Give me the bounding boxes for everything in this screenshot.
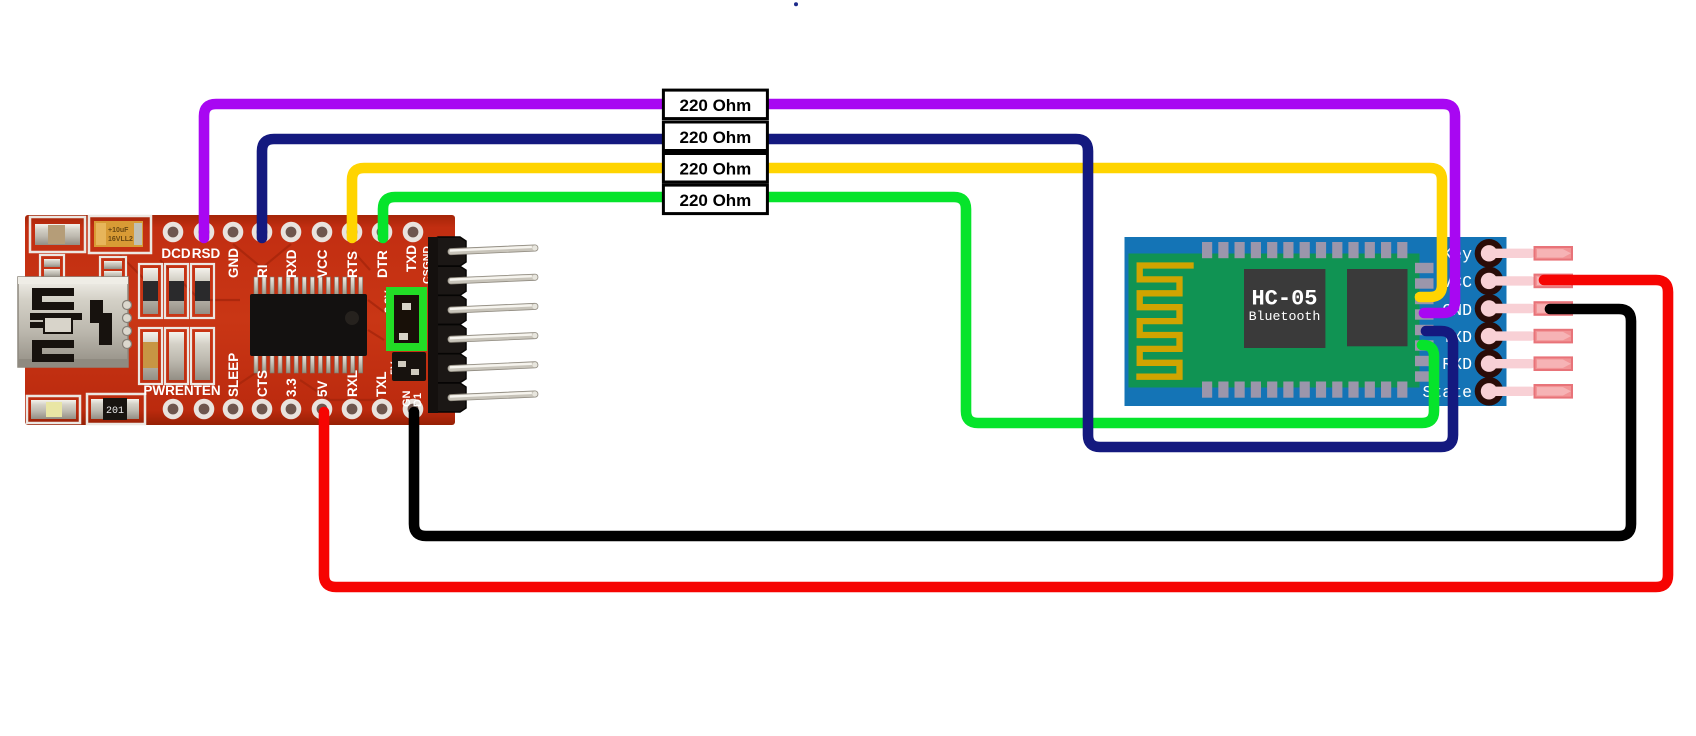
svg-text:RXL: RXL	[345, 370, 360, 397]
svg-text:D1: D1	[412, 393, 424, 407]
svg-text:SLEEP: SLEEP	[226, 353, 241, 397]
svg-text:TXD: TXD	[404, 245, 419, 272]
svg-text:VCC: VCC	[315, 249, 330, 278]
svg-text:5V: 5V	[315, 380, 330, 397]
svg-text:GND: GND	[226, 248, 241, 278]
svg-text:RXD: RXD	[284, 249, 299, 278]
svg-text:HC-05: HC-05	[1251, 286, 1317, 311]
svg-text:DTR: DTR	[375, 250, 390, 278]
svg-text:3.3: 3.3	[284, 378, 299, 397]
svg-text:+10uF: +10uF	[108, 227, 129, 234]
svg-text:TXL: TXL	[374, 372, 389, 398]
svg-text:RSD: RSD	[192, 246, 221, 261]
svg-text:RTS: RTS	[345, 251, 360, 278]
svg-text:DCD: DCD	[161, 246, 190, 261]
svg-text:CTS: CTS	[255, 370, 270, 397]
svg-text:Bluetooth: Bluetooth	[1249, 309, 1321, 324]
svg-text:220 Ohm: 220 Ohm	[679, 128, 751, 147]
svg-text:RI: RI	[255, 265, 270, 279]
svg-text:220 Ohm: 220 Ohm	[679, 159, 751, 178]
svg-text:220 Ohm: 220 Ohm	[679, 191, 751, 210]
svg-text:PWRENTEN: PWRENTEN	[143, 383, 220, 398]
svg-text:16VLL2: 16VLL2	[108, 236, 133, 243]
svg-text:201: 201	[106, 406, 124, 417]
svg-text:220 Ohm: 220 Ohm	[679, 96, 751, 115]
